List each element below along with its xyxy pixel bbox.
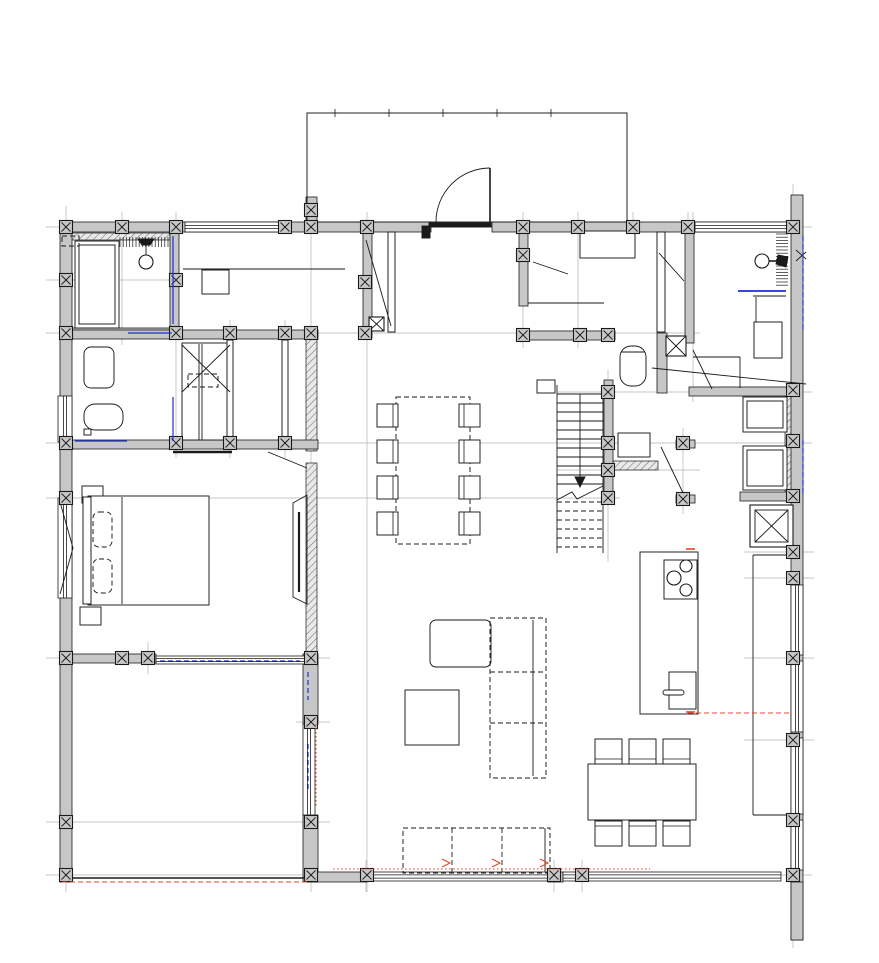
sofa-mark-3 — [540, 859, 548, 867]
washbasin — [84, 347, 114, 388]
door-wc — [661, 447, 684, 495]
pantry-shelf-2-inner — [747, 450, 783, 486]
entry-door-arc — [436, 168, 490, 222]
chair — [459, 440, 480, 463]
wall — [685, 222, 694, 343]
entry-cabinet — [580, 231, 635, 258]
nightstand-2 — [80, 607, 101, 625]
window — [563, 872, 781, 881]
cased-opening-2 — [282, 340, 288, 443]
bathtub-inner — [79, 245, 115, 324]
bed-headboard — [83, 497, 91, 604]
stair-left-outline — [182, 343, 228, 440]
chair — [377, 404, 398, 427]
layer-xboxes — [369, 317, 793, 547]
shower-head-circle — [139, 255, 153, 269]
door-suite — [693, 350, 712, 389]
floor-plan-page — [0, 0, 879, 963]
hatched-wall — [306, 463, 317, 654]
sofa-bottom — [403, 828, 550, 873]
window — [695, 222, 788, 232]
sofa-mark-1 — [442, 859, 450, 867]
window — [791, 585, 803, 655]
porch-outline — [307, 113, 627, 222]
ottoman — [430, 620, 491, 667]
chair — [377, 476, 398, 499]
chair — [595, 739, 622, 764]
entry-threshold — [429, 223, 491, 227]
suite-vanity — [754, 322, 782, 358]
hall-closet-doors — [388, 232, 395, 332]
toilet-1 — [84, 404, 123, 430]
chair — [459, 512, 480, 535]
window — [303, 724, 315, 815]
canopy-diagonal — [652, 368, 806, 384]
shower2-head-circle — [755, 254, 769, 268]
window — [791, 661, 803, 732]
sofa-mark-2 — [492, 859, 500, 867]
wall — [689, 387, 793, 396]
chair — [377, 440, 398, 463]
wall — [519, 331, 615, 340]
window — [156, 656, 305, 664]
wall — [791, 882, 803, 940]
closet-door-entry — [533, 262, 568, 274]
wall — [740, 492, 793, 501]
floor-plan-svg — [0, 0, 879, 963]
shower-head — [138, 239, 154, 245]
chair — [663, 821, 690, 846]
door-bedroom — [268, 452, 307, 468]
chair — [663, 739, 690, 764]
hatched-wall — [306, 339, 317, 451]
entry-jamb — [422, 226, 430, 238]
dining-table-2 — [588, 764, 696, 820]
sofa-chaise — [490, 618, 546, 778]
window — [58, 396, 72, 442]
coffee-table — [405, 690, 459, 745]
chair — [629, 821, 656, 846]
toilet-1-flush — [84, 429, 91, 435]
hatched-wall — [612, 461, 658, 470]
chair — [459, 476, 480, 499]
shower2-head — [776, 255, 788, 267]
chair — [377, 512, 398, 535]
stair-landing — [537, 380, 555, 393]
chair — [595, 821, 622, 846]
stair-arrowhead — [575, 477, 585, 487]
wall — [519, 222, 528, 306]
suite-partition — [657, 232, 665, 332]
window — [791, 820, 803, 870]
bed-body — [88, 496, 209, 605]
window — [185, 222, 282, 232]
chair — [459, 404, 480, 427]
wc-sink — [618, 433, 650, 457]
window — [791, 738, 803, 814]
washing-machine — [202, 270, 229, 294]
island-faucet — [663, 690, 684, 695]
pantry-shelf-1-inner — [747, 401, 783, 428]
window — [58, 498, 72, 598]
chair — [629, 739, 656, 764]
